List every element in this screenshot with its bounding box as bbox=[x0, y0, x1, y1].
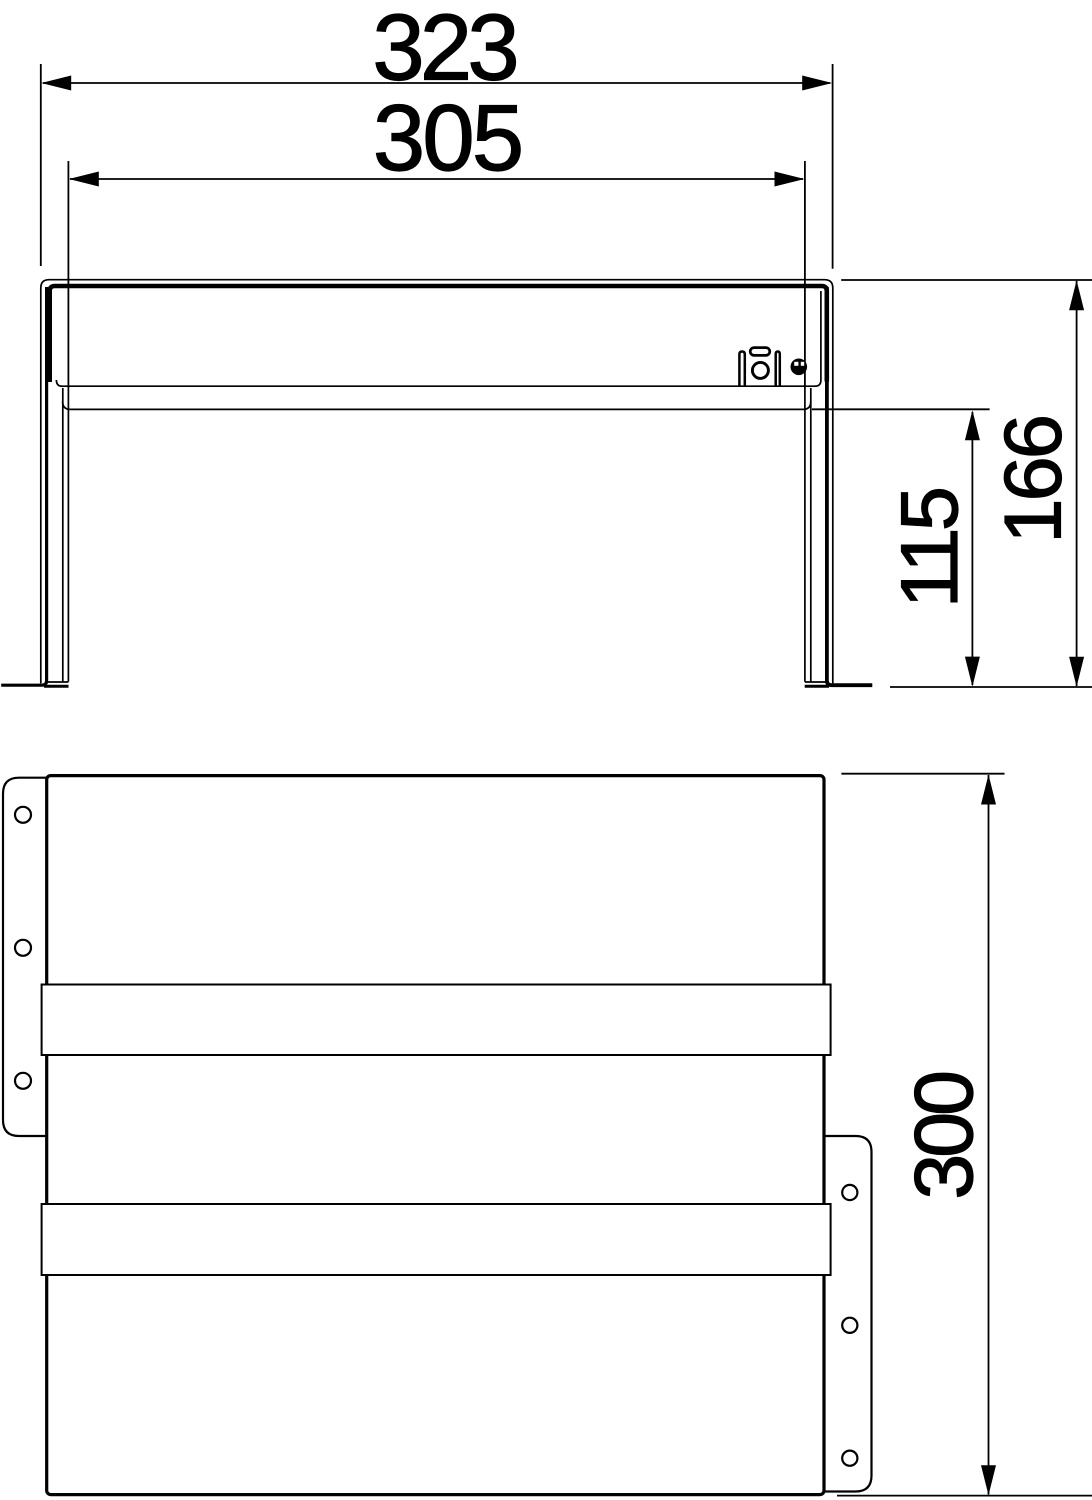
svg-text:115: 115 bbox=[885, 489, 975, 608]
svg-text:300: 300 bbox=[898, 1073, 990, 1200]
svg-text:305: 305 bbox=[373, 85, 521, 190]
svg-text:166: 166 bbox=[989, 417, 1079, 544]
